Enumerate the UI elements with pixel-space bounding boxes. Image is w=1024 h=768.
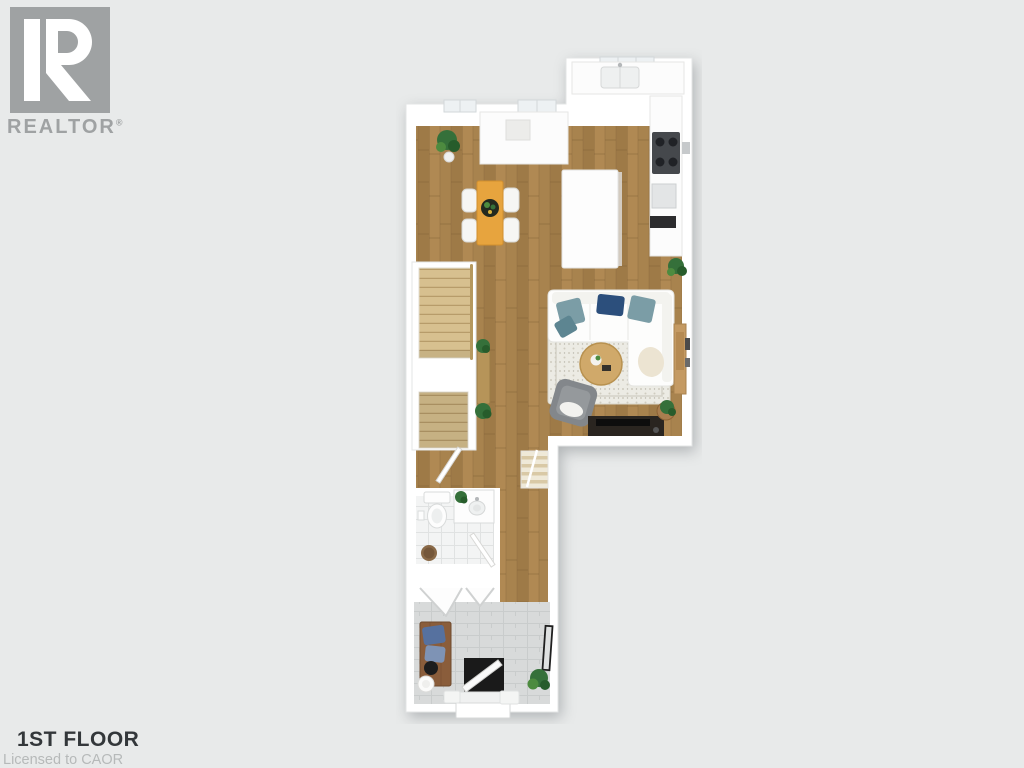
stair-railing (470, 264, 473, 360)
license-text: Licensed to CAOR (3, 753, 139, 768)
oven-handle (682, 142, 690, 154)
chair (503, 218, 519, 242)
front-door (456, 658, 510, 718)
right-counter (650, 96, 682, 256)
wall-art (685, 338, 690, 350)
stairwell (412, 262, 476, 483)
chair (462, 219, 477, 242)
toilet-paper-holder (418, 511, 424, 520)
door-mat (444, 691, 460, 703)
realtor-logo: REALTOR® (10, 7, 140, 139)
coffee-table (580, 343, 622, 385)
footer: 1ST FLOOR Licensed to CAOR (3, 729, 139, 768)
tv (596, 419, 650, 426)
vanity (454, 490, 494, 523)
floor-title: 1ST FLOOR (17, 729, 139, 751)
chair (503, 188, 519, 212)
hall-stairs (521, 450, 548, 488)
registered-mark: ® (116, 117, 123, 127)
stove (652, 132, 680, 174)
countertop-appliance (506, 120, 530, 140)
centerpiece (481, 199, 499, 217)
faucet (475, 497, 479, 501)
bench-pillow (422, 625, 446, 646)
pillow-navy (596, 294, 625, 317)
page: REALTOR® (0, 0, 1024, 768)
realtor-wordmark: REALTOR® (7, 116, 140, 139)
kitchen-island (562, 170, 618, 268)
chair (462, 189, 477, 212)
exterior-step (456, 703, 510, 718)
bench-pillow (424, 645, 446, 663)
console-table (475, 339, 492, 419)
counter-sink-2 (652, 184, 676, 208)
dishwasher-front (650, 216, 676, 228)
entry-bench (418, 622, 451, 692)
faucet (618, 63, 622, 67)
wall-art (685, 358, 690, 367)
floor-plan (396, 48, 702, 724)
handbag (424, 661, 438, 675)
door-mat (500, 691, 519, 704)
realtor-r-icon (10, 7, 110, 113)
pillow-teal-right (627, 295, 656, 324)
stairs-upper-flight (419, 268, 471, 358)
